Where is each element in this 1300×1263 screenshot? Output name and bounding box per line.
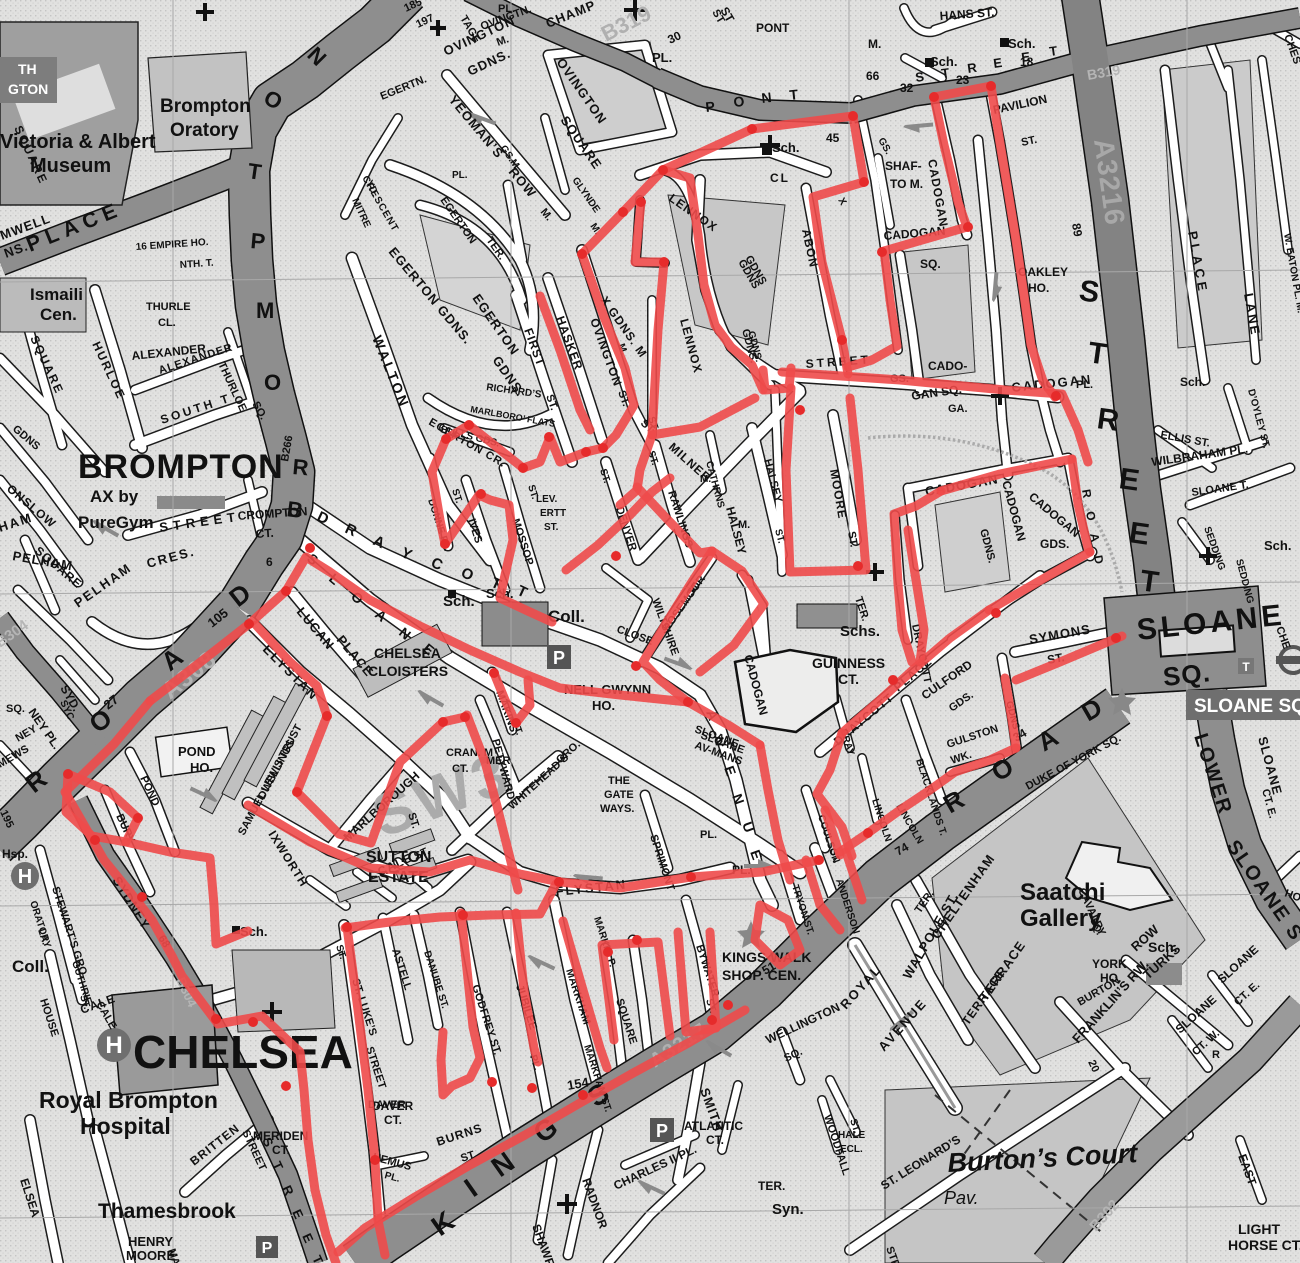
- svg-text:P: P: [705, 98, 716, 115]
- svg-text:HORSE CT.: HORSE CT.: [1228, 1237, 1300, 1253]
- svg-text:Sch.: Sch.: [1264, 538, 1291, 553]
- svg-text:GA.: GA.: [948, 403, 968, 415]
- svg-text:CT.: CT.: [452, 763, 469, 775]
- svg-text:Ismaili: Ismaili: [30, 285, 83, 304]
- svg-text:Oratory: Oratory: [170, 120, 239, 141]
- svg-text:CT.: CT.: [384, 1113, 402, 1127]
- svg-text:M.: M.: [700, 474, 711, 485]
- svg-text:GUINNESS: GUINNESS: [812, 655, 885, 671]
- svg-text:CL: CL: [770, 171, 790, 185]
- svg-text:R: R: [292, 454, 310, 480]
- svg-text:Pav.: Pav.: [944, 1188, 979, 1208]
- svg-text:P: P: [262, 1240, 273, 1257]
- svg-text:P: P: [656, 1121, 668, 1141]
- svg-text:PL.: PL.: [652, 50, 672, 65]
- svg-text:TH: TH: [18, 61, 37, 77]
- svg-text:M.: M.: [738, 519, 750, 531]
- svg-text:CL.: CL.: [158, 317, 176, 329]
- svg-text:PL.: PL.: [498, 3, 515, 15]
- svg-text:32: 32: [900, 81, 914, 95]
- svg-text:CHELSEA: CHELSEA: [133, 1026, 353, 1078]
- svg-text:CT.: CT.: [706, 1133, 724, 1147]
- svg-text:45: 45: [826, 131, 840, 145]
- svg-text:HO.: HO.: [1028, 281, 1049, 295]
- svg-text:SHAF-: SHAF-: [885, 159, 922, 173]
- svg-text:Sch.: Sch.: [772, 140, 799, 155]
- svg-text:THURLE: THURLE: [146, 301, 191, 313]
- svg-text:Royal Brompton: Royal Brompton: [39, 1087, 218, 1113]
- svg-text:PL.: PL.: [1076, 379, 1093, 391]
- svg-text:HO.: HO.: [190, 760, 213, 775]
- svg-text:P: P: [553, 648, 565, 668]
- svg-text:Sch.: Sch.: [1008, 36, 1035, 51]
- svg-text:HO.: HO.: [592, 698, 615, 713]
- svg-text:CT.: CT.: [255, 526, 274, 541]
- svg-text:N: N: [761, 89, 773, 106]
- svg-text:Cen.: Cen.: [40, 305, 77, 324]
- svg-text:TO M.: TO M.: [890, 177, 923, 191]
- svg-text:POND: POND: [178, 744, 216, 759]
- svg-text:89: 89: [1069, 222, 1085, 238]
- svg-text:Sch.: Sch.: [443, 593, 475, 610]
- svg-text:GTON: GTON: [8, 81, 48, 97]
- svg-text:H: H: [18, 866, 32, 888]
- svg-text:Brompton: Brompton: [160, 96, 251, 117]
- svg-text:ST.: ST.: [544, 522, 559, 533]
- svg-text:Schs.: Schs.: [840, 623, 880, 640]
- svg-text:CT.: CT.: [272, 1143, 290, 1157]
- svg-text:PureGym: PureGym: [78, 513, 154, 532]
- svg-text:GATE: GATE: [604, 789, 634, 801]
- svg-text:M.: M.: [868, 37, 881, 51]
- svg-text:HENRY: HENRY: [128, 1234, 173, 1249]
- svg-text:66: 66: [866, 69, 880, 83]
- svg-text:THE: THE: [608, 775, 630, 787]
- svg-text:Coll.: Coll.: [12, 957, 49, 976]
- svg-text:CLOISTERS: CLOISTERS: [368, 663, 448, 679]
- svg-text:BROMPTON: BROMPTON: [78, 448, 284, 486]
- svg-text:SQ.: SQ.: [920, 257, 941, 271]
- svg-text:H: H: [105, 1032, 122, 1059]
- svg-text:PONT: PONT: [756, 21, 790, 35]
- svg-text:6: 6: [266, 555, 273, 569]
- svg-text:R: R: [1212, 1049, 1220, 1061]
- svg-text:ERTT: ERTT: [540, 508, 566, 519]
- svg-text:SLOANE SQ: SLOANE SQ: [1194, 696, 1300, 717]
- svg-text:GDS.: GDS.: [1040, 537, 1069, 551]
- svg-text:YORK: YORK: [1092, 957, 1127, 971]
- svg-text:Hsp.: Hsp.: [2, 847, 28, 861]
- svg-text:ECL.: ECL.: [840, 1144, 863, 1155]
- svg-text:LEV.: LEV.: [536, 494, 558, 505]
- svg-text:PL.: PL.: [700, 829, 717, 841]
- svg-text:P: P: [250, 228, 267, 254]
- svg-text:T: T: [1242, 660, 1250, 674]
- svg-text:M: M: [256, 298, 274, 323]
- svg-text:Sch.: Sch.: [1180, 375, 1205, 389]
- svg-text:Thamesbrook: Thamesbrook: [98, 1200, 236, 1223]
- svg-text:CADO-: CADO-: [928, 359, 967, 373]
- svg-text:LIGHT: LIGHT: [1238, 1221, 1280, 1237]
- svg-text:TER.: TER.: [758, 1179, 785, 1193]
- svg-text:PL.: PL.: [452, 170, 468, 181]
- svg-text:SQ.: SQ.: [1161, 657, 1212, 692]
- svg-text:WAYS.: WAYS.: [600, 803, 634, 815]
- svg-text:Hospital: Hospital: [80, 1113, 171, 1139]
- svg-text:O: O: [264, 370, 281, 395]
- svg-text:AX by: AX by: [90, 487, 139, 506]
- svg-text:SQ.: SQ.: [6, 703, 25, 715]
- svg-text:CT.: CT.: [838, 671, 859, 687]
- svg-text:O: O: [733, 93, 746, 110]
- svg-text:Syn.: Syn.: [772, 1201, 804, 1218]
